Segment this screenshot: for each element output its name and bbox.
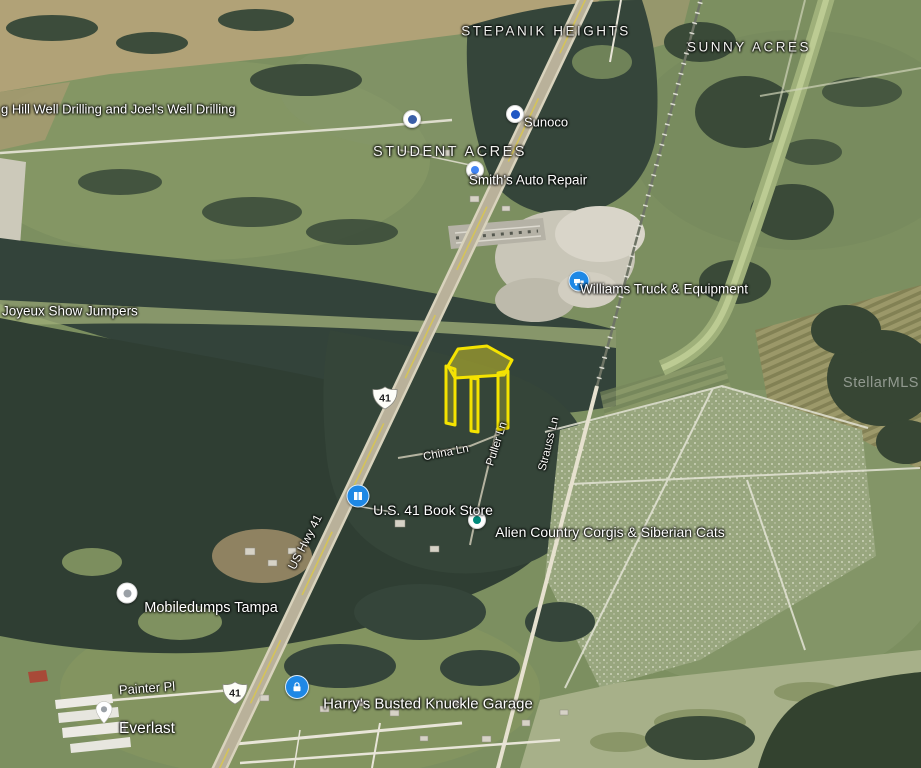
poi-label-joyeux-show-jumpers[interactable]: Joyeux Show Jumpers [2,304,138,319]
route-shield-number: 41 [379,392,391,404]
clearing [62,548,122,576]
poi-label-everlast[interactable]: Everlast [119,720,175,738]
sunoco-pin-icon[interactable] [506,105,524,123]
stellar-mls-watermark: StellarMLS [843,375,919,391]
red-roof-building [28,670,48,683]
area-label-stepanik-heights: STEPANIK HEIGHTS [461,24,631,39]
area-label-sunny-acres: SUNNY ACRES [687,40,811,55]
forest-clearing [572,45,632,79]
trees [645,716,755,760]
us-route-41-shield-north: 41 [372,386,399,411]
book-store-pin-icon[interactable] [347,485,370,508]
pin-dot [408,115,417,124]
poi-label-smiths-auto-repair[interactable]: Smith's Auto Repair [469,173,587,188]
harrys-garage-pin-icon[interactable] [285,675,309,699]
area-label-student-acres: STUDENT ACRES [373,144,527,160]
poi-label-williams-truck[interactable]: Williams Truck & Equipment [580,282,748,297]
us-route-41-shield-south: 41 [222,681,249,706]
lock-icon [291,681,303,693]
business-pin-icon[interactable] [403,110,421,128]
pin-dot [123,589,131,597]
route-shield-number: 41 [229,687,241,699]
poi-label-sunoco[interactable]: Sunoco [524,115,568,130]
poi-label-well-drilling[interactable]: g Hill Well Drilling and Joel's Well Dri… [1,102,236,117]
book-icon [353,491,364,502]
poi-label-alien-country-corgis[interactable]: Alien Country Corgis & Siberian Cats [495,524,725,540]
satellite-map: 41 41 STEPANIK HEIGHTS SUNNY ACRES STUDE… [0,0,921,768]
map-pin-icon [96,701,113,724]
highlighted-parcel [446,346,512,432]
poi-label-harrys-garage[interactable]: Harry's Busted Knuckle Garage [323,696,533,713]
everlast-pin-icon[interactable] [96,701,113,724]
poi-label-us-41-book-store[interactable]: U.S. 41 Book Store [373,502,493,518]
mobiledumps-pin-icon[interactable] [117,583,138,604]
pin-dot [511,110,520,119]
poi-label-mobiledumps-tampa[interactable]: Mobiledumps Tampa [144,600,278,616]
